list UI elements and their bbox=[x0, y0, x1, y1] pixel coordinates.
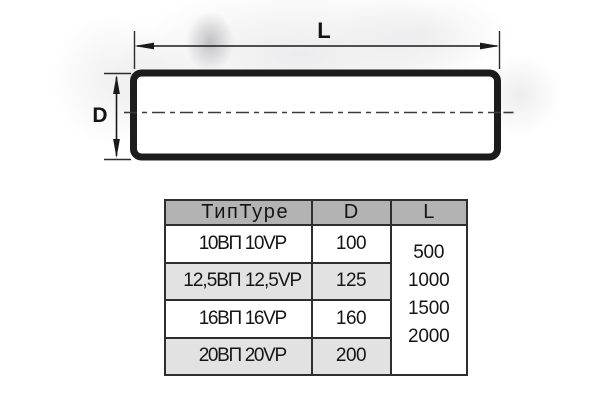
svg-text:L: L bbox=[317, 18, 330, 43]
svg-text:D: D bbox=[92, 104, 107, 127]
